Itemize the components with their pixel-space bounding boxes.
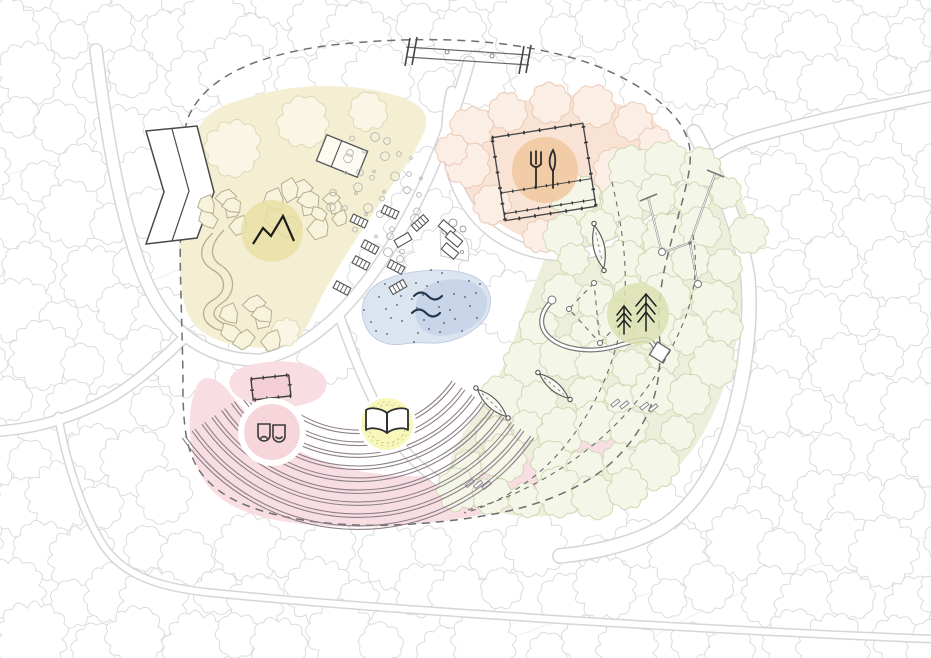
pond-dot (430, 269, 432, 271)
pond-dot (390, 317, 392, 319)
background-tree (0, 96, 39, 138)
masterplan-canvas (0, 0, 931, 658)
background-tree (411, 526, 451, 568)
background-tree (250, 617, 308, 658)
bridge-post (490, 54, 494, 58)
background-tree (648, 578, 687, 617)
background-tree (880, 475, 926, 521)
pond-dot (384, 283, 386, 285)
background-tree (873, 56, 911, 95)
pond-dot (461, 330, 463, 332)
bridge-post (445, 50, 449, 54)
pond-dot (437, 281, 439, 283)
background-tree (136, 466, 193, 524)
background-tree (685, 2, 726, 44)
pond-dot (396, 304, 398, 306)
background-tree (130, 386, 174, 430)
forest-badge-circle (607, 283, 669, 345)
background-tree (924, 518, 931, 564)
pond-dot (422, 294, 424, 296)
forest-tree (558, 243, 590, 276)
pond-dot (417, 332, 419, 334)
pond-dot (468, 280, 470, 282)
pond-dot (428, 328, 430, 330)
pond-dot (441, 272, 443, 274)
pond-dot (370, 321, 372, 323)
pond-dot (479, 283, 481, 285)
pond-dot (464, 296, 466, 298)
background-tree (0, 41, 60, 105)
pond-dot (453, 293, 455, 295)
pond-dot (449, 309, 451, 311)
pond-dot (426, 285, 428, 287)
pond-dot (375, 330, 377, 332)
pond-dot (400, 295, 402, 297)
background-tree (851, 12, 891, 51)
pond-dot (423, 319, 425, 321)
background-tree (107, 46, 157, 98)
pond-dot (363, 309, 365, 311)
masterplan-svg (0, 0, 931, 658)
forest-tree (710, 176, 742, 209)
background-tree (61, 343, 105, 387)
pond-dot (378, 296, 380, 298)
pond-dot (443, 322, 445, 324)
stage-structure (251, 375, 291, 400)
background-tree (526, 632, 567, 658)
planting-dot (375, 235, 378, 238)
pond-dot (476, 317, 478, 319)
pond-dot (401, 320, 403, 322)
pond-dot (469, 305, 471, 307)
pond-dot (385, 308, 387, 310)
lounger-bench (333, 281, 351, 296)
background-tree (759, 0, 798, 9)
pond-dot (415, 282, 417, 284)
pond-dot (454, 318, 456, 320)
rock-garden-badge-circle (241, 200, 303, 262)
pond-dot (438, 306, 440, 308)
pond-dot (386, 333, 388, 335)
background-tree (575, 0, 630, 52)
background-tree (0, 137, 11, 203)
pond-dot (475, 292, 477, 294)
masks-circle (244, 404, 300, 460)
picnic-badge-circle (512, 137, 578, 203)
pond-dot (411, 298, 413, 300)
pond-dot (439, 331, 441, 333)
pond-dot (413, 341, 415, 343)
